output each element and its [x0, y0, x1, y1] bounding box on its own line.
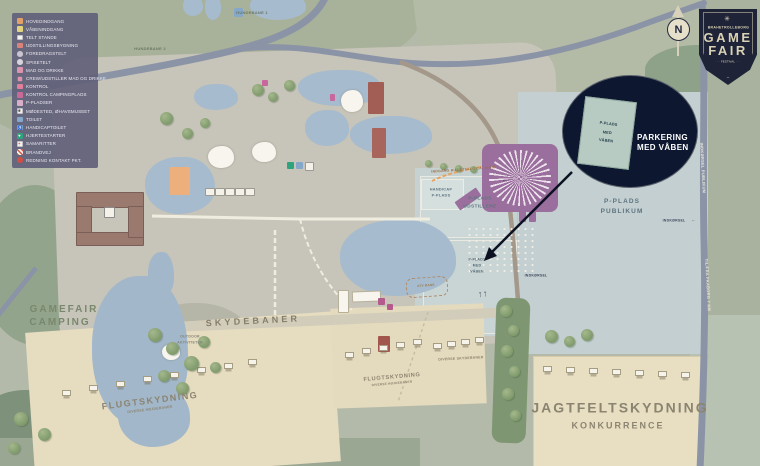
- label-indkoersel-inner: INDKØRSEL: [525, 274, 548, 278]
- legend-item: ♿HANDICAPTOILET: [17, 123, 95, 131]
- control-icon: [17, 84, 23, 90]
- orange-building: [170, 167, 190, 195]
- label-konkurrence: KONKURRENCE: [571, 421, 664, 432]
- label-handicap-2: P-PLADS: [432, 194, 451, 199]
- castle-east-wing: [128, 206, 144, 238]
- lecture-tent-blob: [208, 146, 234, 168]
- stand-chip-5: [245, 188, 255, 196]
- food-drink-icon: [17, 67, 23, 73]
- stand: [197, 367, 206, 373]
- legend-item: KONTROL: [17, 83, 95, 91]
- stand: [170, 372, 179, 378]
- tree: [268, 92, 278, 102]
- legend-item: BRANDVEJ: [17, 148, 95, 156]
- dining-tent-blob: [252, 142, 276, 162]
- white-hall: [352, 290, 381, 302]
- callout-parking-box: P-PLADS MED VÅBEN: [577, 96, 637, 170]
- dining-tent-icon: [17, 59, 23, 65]
- white-hall-2: [338, 290, 349, 313]
- lake-neck: [148, 252, 174, 298]
- tree: [14, 412, 28, 426]
- tree: [200, 118, 210, 128]
- label-vaaben-1: P-PLADS: [468, 258, 485, 262]
- up-arrows-icon: ↑↑: [477, 288, 488, 300]
- legend-item: SPISETELT: [17, 58, 95, 66]
- legend-item: CREW/UDSTILLER MAD OG DRIKKE: [17, 74, 95, 82]
- magenta-chip-3: [378, 298, 385, 305]
- stand: [635, 370, 644, 376]
- stand: [433, 343, 442, 349]
- stand: [658, 371, 667, 377]
- magenta-chip-4: [387, 304, 393, 310]
- label-camping-2: CAMPING: [29, 317, 90, 329]
- logo-word-game: GAME: [704, 31, 753, 44]
- stand: [248, 359, 257, 365]
- stand-chip-2: [215, 188, 225, 196]
- stand: [89, 385, 98, 391]
- label-camping-1: GAMEFAIR: [30, 304, 99, 316]
- legend-item: KONTROL CAMPINGPLADS: [17, 91, 95, 99]
- legend-item: VÅBENINDGANG: [17, 25, 95, 33]
- label-handicap-1: HANDICAP: [430, 188, 453, 193]
- label-hundebane-2: HUNDEBANE 2: [134, 47, 166, 52]
- tree: [425, 160, 432, 167]
- label-outdoor-2: AKTIVITETER: [177, 341, 203, 345]
- tree: [38, 428, 51, 441]
- first-aid-icon: +: [17, 141, 23, 147]
- tree: [8, 442, 20, 454]
- game-fair-map: HUNDEBANE 1 HUNDEBANE 2 GAMEFAIR CAMPING…: [0, 0, 760, 466]
- label-vaaben-2: MED: [473, 264, 482, 268]
- main-entrance-icon: [17, 18, 23, 24]
- tree: [252, 84, 264, 96]
- stand: [589, 368, 598, 374]
- control-camping-icon: [17, 92, 23, 98]
- pond-1: [194, 84, 238, 110]
- tree: [545, 330, 558, 343]
- label-vaaben-3: VÅBEN: [470, 270, 484, 274]
- stand: [143, 376, 152, 382]
- logo-ribbon-text: · · · FESTIVAL · · ·: [716, 60, 741, 63]
- magenta-chip-2: [330, 94, 335, 101]
- logo-word-fair: FAIR: [708, 44, 748, 57]
- label-publikum-2: PUBLIKUM: [601, 207, 644, 215]
- defib-chip: [287, 162, 294, 169]
- legend-item: UDSTILLINGSBYGNING: [17, 42, 95, 50]
- legend-item: REDNING KONTAKT PKT.: [17, 156, 95, 164]
- tree: [564, 336, 575, 347]
- legend-item: ♥HJERTESTARTER: [17, 132, 95, 140]
- stand: [612, 369, 621, 375]
- exit-arrow-icon: ←: [501, 176, 509, 185]
- stand: [461, 339, 470, 345]
- handicap-toilet-icon: ♿: [17, 125, 23, 131]
- tree: [501, 345, 513, 357]
- stand-chip-4: [235, 188, 245, 196]
- logo-emblem-icon: ✳: [724, 15, 732, 23]
- tent-blob-3: [341, 90, 363, 112]
- tree: [184, 356, 199, 371]
- red-building-north: [368, 82, 384, 114]
- legend-item: MAD OG DRIKKE: [17, 66, 95, 74]
- weapons-entrance-icon: [17, 26, 23, 32]
- callout-title: PARKERING MED VÅBEN: [637, 133, 697, 154]
- arena-starburst: [489, 150, 551, 206]
- pond-4: [350, 116, 432, 154]
- legend-panel: HOVEDINDGANG VÅBENINDGANG TELT STANDE UD…: [12, 13, 98, 168]
- label-udstillere-1: P-PLADS: [468, 195, 491, 201]
- logo-estate-name: BRAHETROLLEBORG: [707, 26, 748, 30]
- legend-item: HOVEDINDGANG: [17, 17, 95, 25]
- tree: [500, 305, 512, 317]
- stand: [566, 367, 575, 373]
- meeting-point-icon: ✳: [17, 108, 23, 114]
- legend-item: P-PLADSER: [17, 99, 95, 107]
- compass-north-icon: N: [667, 18, 690, 41]
- toilet-icon: [17, 117, 23, 123]
- legend-item: +SAMARITTER: [17, 140, 95, 148]
- legend-item: TOILET: [17, 115, 95, 123]
- defibrillator-icon: ♥: [17, 133, 23, 139]
- parking-icon: [17, 100, 23, 106]
- label-hundebane-1: HUNDEBANE 1: [236, 11, 268, 16]
- rescue-point-icon: [17, 157, 23, 163]
- stand: [62, 390, 71, 396]
- stand-chip-3: [225, 188, 235, 196]
- purple-stand-2: [519, 206, 526, 222]
- exhibition-building-icon: [17, 43, 23, 49]
- crew-food-icon: [18, 76, 22, 80]
- tree: [581, 329, 593, 341]
- stand-chip-1: [205, 188, 215, 196]
- tree: [509, 366, 520, 377]
- purple-stand-3: [529, 206, 536, 222]
- lecture-tent-icon: [17, 51, 23, 57]
- tree: [160, 112, 173, 125]
- info-chip: [305, 162, 314, 171]
- legend-item: ✳MØDESTED, ØHAVSMUSEET: [17, 107, 95, 115]
- tree: [502, 388, 514, 400]
- stand: [681, 372, 690, 378]
- pond-3: [305, 110, 349, 146]
- toilet-chip-mid: [296, 162, 303, 169]
- stand: [379, 345, 388, 351]
- label-publikum-1: P-PLADS: [604, 197, 640, 205]
- indkoersel-arrow-icon: ←: [691, 218, 696, 224]
- stand: [396, 342, 405, 348]
- stand: [116, 381, 125, 387]
- label-udstillere-2: UDSTILLERE: [463, 203, 496, 209]
- stand: [413, 339, 422, 345]
- tree: [210, 362, 221, 373]
- tent-stand-icon: [17, 35, 23, 41]
- tree: [510, 410, 521, 421]
- label-jagtfeltskydning: JAGTFELTSKYDNING: [531, 400, 708, 417]
- legend-item: FOREDRAGSTELT: [17, 50, 95, 58]
- tree: [284, 80, 295, 91]
- magenta-chip-1: [262, 80, 268, 86]
- tree: [158, 370, 170, 382]
- stand: [362, 348, 371, 354]
- label-outdoor-1: OUTDOOR: [180, 335, 200, 339]
- tree: [148, 328, 162, 342]
- legend-item: TELT STANDE: [17, 33, 95, 41]
- stand: [345, 352, 354, 358]
- stand: [224, 363, 233, 369]
- tree: [508, 325, 519, 336]
- stand: [447, 341, 456, 347]
- castle-courtyard-marker: [104, 207, 115, 218]
- fire-road-icon: [17, 149, 23, 155]
- label-indkoersel-road: INDKØRSEL: [663, 219, 686, 223]
- stand: [543, 366, 552, 372]
- red-building-mid: [372, 128, 386, 158]
- stand: [475, 337, 484, 343]
- tree: [182, 128, 193, 139]
